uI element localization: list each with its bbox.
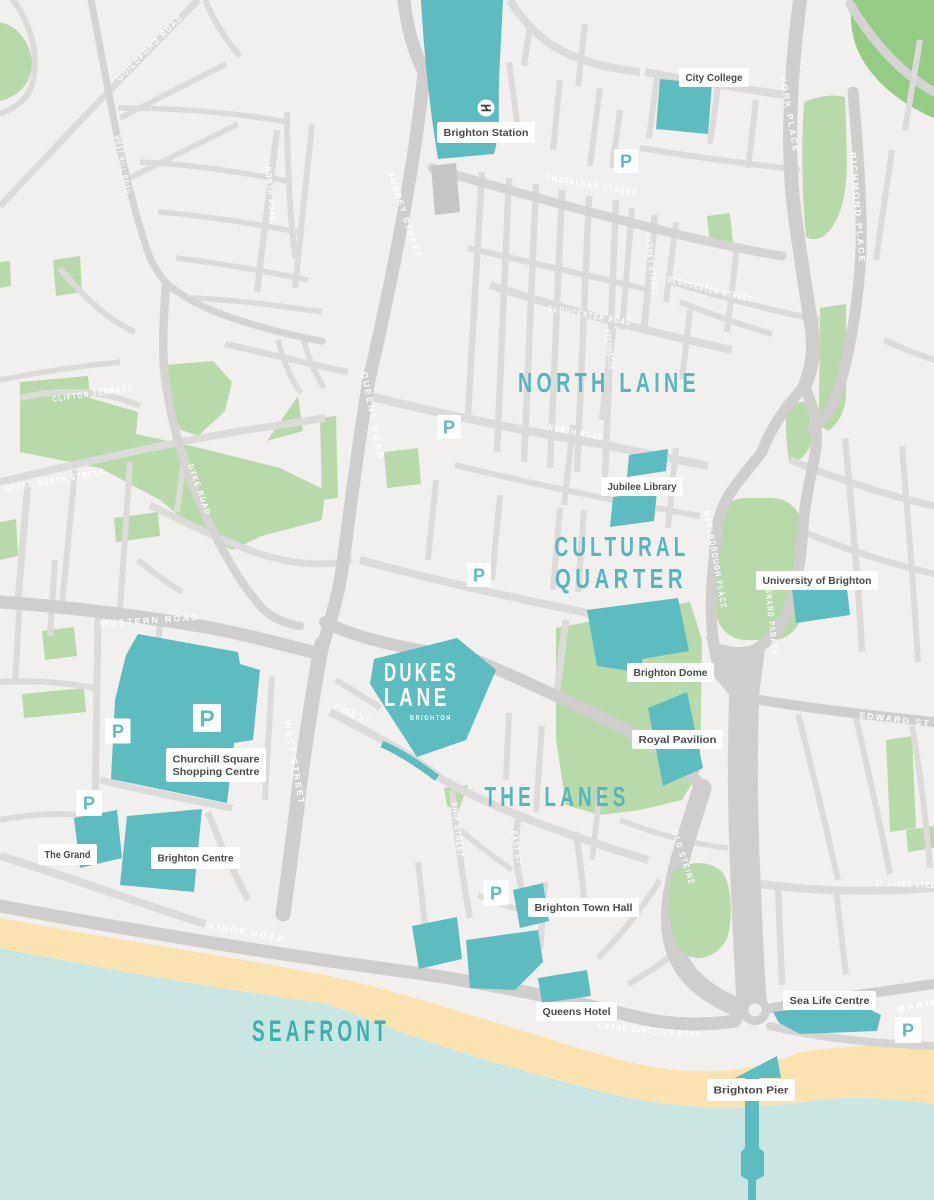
svg-text:Churchill Square: Churchill Square [173,753,260,765]
svg-text:Brighton Pier: Brighton Pier [714,1085,789,1097]
svg-text:LANE: LANE [384,682,450,712]
svg-text:P: P [199,705,214,731]
svg-text:P: P [83,793,95,813]
svg-text:P: P [112,721,124,741]
svg-text:Sea Life Centre: Sea Life Centre [790,995,870,1007]
svg-text:Queens Hotel: Queens Hotel [543,1006,611,1018]
svg-text:P: P [443,417,455,437]
svg-text:City College: City College [686,72,743,84]
svg-text:Brighton Station: Brighton Station [444,127,529,139]
svg-text:QUARTER: QUARTER [555,563,687,594]
svg-text:Brighton Centre: Brighton Centre [158,853,234,865]
svg-text:Brighton Town Hall: Brighton Town Hall [535,902,633,914]
svg-text:Brighton Dome: Brighton Dome [634,667,708,679]
svg-text:NORTH LAINE: NORTH LAINE [518,367,700,398]
svg-text:P: P [902,1020,914,1040]
svg-text:Royal Pavilion: Royal Pavilion [639,734,717,746]
svg-text:P: P [490,883,502,903]
svg-text:CULTURAL: CULTURAL [555,531,690,562]
svg-text:P: P [620,151,632,171]
svg-text:The Grand: The Grand [45,849,91,861]
svg-text:University of Brighton: University of Brighton [763,575,872,587]
svg-text:P: P [473,565,485,585]
svg-text:BRIGHTON: BRIGHTON [410,715,452,722]
svg-text:Shopping Centre: Shopping Centre [173,766,260,778]
svg-text:THE LANES: THE LANES [485,781,630,812]
svg-text:SEAFRONT: SEAFRONT [252,1015,390,1048]
svg-text:Jubilee Library: Jubilee Library [608,481,677,493]
